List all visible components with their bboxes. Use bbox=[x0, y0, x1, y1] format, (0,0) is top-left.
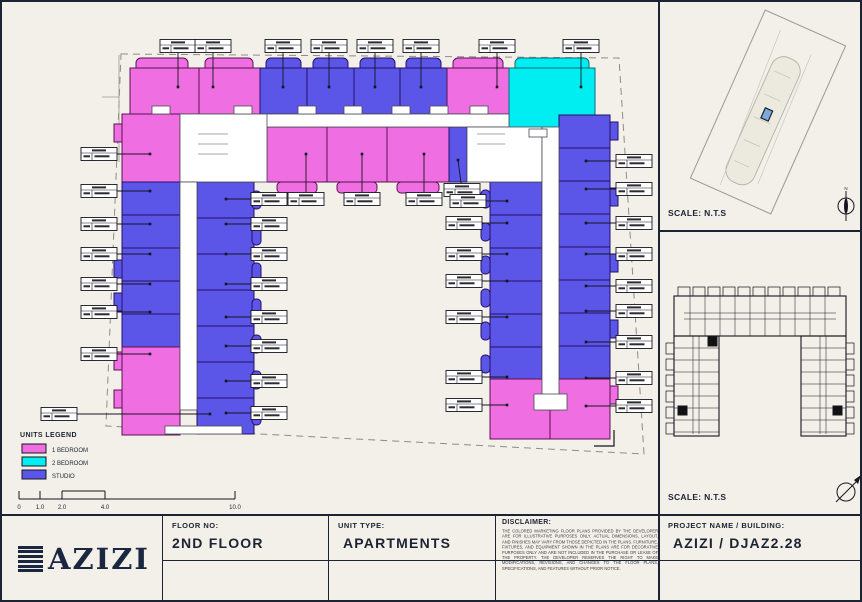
scale-bar bbox=[19, 491, 235, 499]
project-name-label: PROJECT NAME / BUILDING: bbox=[668, 521, 785, 530]
legend-swatch-2bedroom bbox=[22, 457, 46, 466]
north-arrow-icon: N bbox=[838, 186, 854, 221]
key-plan-building bbox=[666, 287, 854, 436]
core-marker bbox=[833, 406, 842, 415]
boundary-mark bbox=[102, 55, 119, 162]
legend-label-studio: STUDIO bbox=[52, 474, 75, 480]
north-arrow-icon bbox=[836, 475, 860, 502]
azizi-logo: AZIZI bbox=[18, 542, 150, 576]
legend-swatch-studio bbox=[22, 470, 46, 479]
floor-no-label: FLOOR NO: bbox=[172, 521, 219, 530]
scale-bar-labels: 0 1.0 2.0 4.0 10.0 bbox=[17, 505, 241, 511]
svg-text:4.0: 4.0 bbox=[101, 505, 110, 511]
svg-text:2.0: 2.0 bbox=[58, 505, 67, 511]
unit-type-label: UNIT TYPE: bbox=[338, 521, 385, 530]
drawing-sheet: UNITS LEGEND 1 BEDROOM 2 BEDROOM STUDIO … bbox=[0, 0, 862, 602]
keyplan-scale-label: SCALE: N.T.S bbox=[668, 492, 726, 502]
azizi-logo-bars-icon bbox=[18, 546, 43, 573]
legend-label-2bedroom: 2 BEDROOM bbox=[52, 461, 88, 467]
location-map: SCALE: N.T.S N bbox=[660, 2, 860, 230]
floor-no-value: 2ND FLOOR bbox=[172, 535, 264, 551]
building-units bbox=[114, 58, 618, 439]
titleblock-divider bbox=[495, 514, 496, 600]
titleblock-divider bbox=[328, 514, 329, 600]
unit-type-value: APARTMENTS bbox=[343, 535, 451, 551]
divider-map-keyplan bbox=[658, 230, 860, 232]
svg-text:N: N bbox=[844, 186, 847, 191]
key-plan: SCALE: N.T.S bbox=[660, 232, 860, 515]
core-marker bbox=[678, 406, 687, 415]
core-marker bbox=[708, 337, 717, 346]
svg-text:10.0: 10.0 bbox=[229, 505, 241, 511]
project-name-value: AZIZI / DJAZ2.28 bbox=[673, 535, 803, 551]
map-scale-label: SCALE: N.T.S bbox=[668, 208, 726, 218]
titleblock-top-border bbox=[2, 514, 860, 516]
legend-label-1bedroom: 1 BEDROOM bbox=[52, 448, 88, 454]
svg-text:0: 0 bbox=[17, 505, 21, 511]
disclaimer-label: DISCLAIMER: bbox=[502, 519, 551, 526]
legend-swatch-1bedroom bbox=[22, 444, 46, 453]
disclaimer-text: THE COLORED MARKETING FLOOR PLANS PROVID… bbox=[502, 529, 658, 571]
floor-plan: UNITS LEGEND 1 BEDROOM 2 BEDROOM STUDIO … bbox=[2, 2, 662, 515]
svg-text:1.0: 1.0 bbox=[36, 505, 45, 511]
units-legend: UNITS LEGEND 1 BEDROOM 2 BEDROOM STUDIO bbox=[20, 432, 88, 480]
titleblock-divider bbox=[162, 514, 163, 600]
divider-right-column bbox=[658, 2, 660, 600]
azizi-logo-text: AZIZI bbox=[48, 545, 150, 574]
legend-title: UNITS LEGEND bbox=[20, 432, 77, 439]
